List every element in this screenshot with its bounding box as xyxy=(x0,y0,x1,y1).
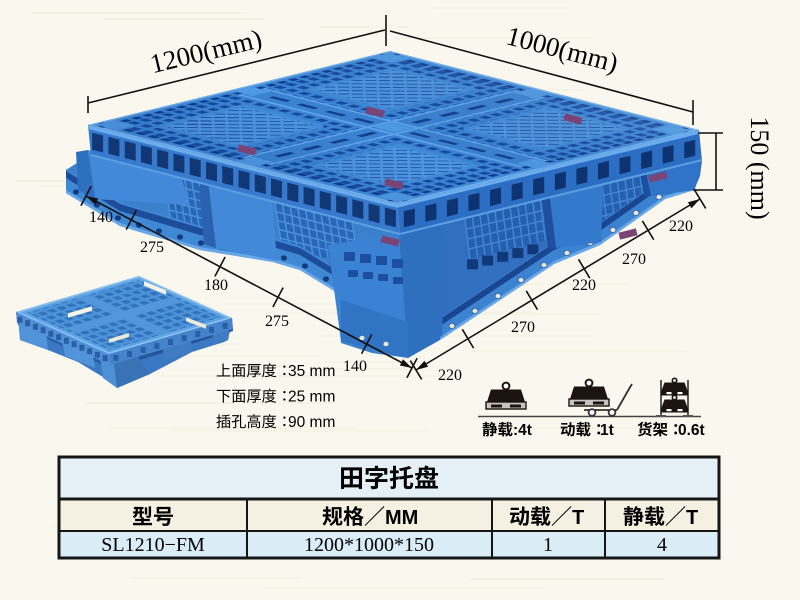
svg-text:1200*1000*150: 1200*1000*150 xyxy=(304,534,434,556)
svg-text:4: 4 xyxy=(657,534,667,556)
svg-text::4t: :4t xyxy=(513,422,532,439)
svg-text:SL1210−FM: SL1210−FM xyxy=(101,534,205,556)
svg-text:150 (mm): 150 (mm) xyxy=(745,116,774,219)
svg-text:220: 220 xyxy=(572,277,596,294)
svg-text:1t: 1t xyxy=(600,422,614,439)
svg-text:140: 140 xyxy=(89,209,113,226)
svg-text:MM: MM xyxy=(385,507,418,529)
svg-text:275: 275 xyxy=(140,239,164,256)
svg-text:T: T xyxy=(686,507,698,529)
svg-text:T: T xyxy=(572,507,584,529)
svg-text:220: 220 xyxy=(669,218,693,235)
svg-text:1: 1 xyxy=(543,534,553,556)
svg-text:35 mm: 35 mm xyxy=(288,363,335,380)
svg-text:180: 180 xyxy=(204,277,228,294)
svg-text:140: 140 xyxy=(343,358,367,375)
svg-text:275: 275 xyxy=(265,313,289,330)
svg-text:220: 220 xyxy=(438,367,462,384)
svg-text:270: 270 xyxy=(622,251,646,268)
svg-text:270: 270 xyxy=(511,319,535,336)
svg-text:25 mm: 25 mm xyxy=(288,389,335,406)
svg-text:90 mm: 90 mm xyxy=(288,414,335,431)
svg-text:0.6t: 0.6t xyxy=(678,422,705,439)
